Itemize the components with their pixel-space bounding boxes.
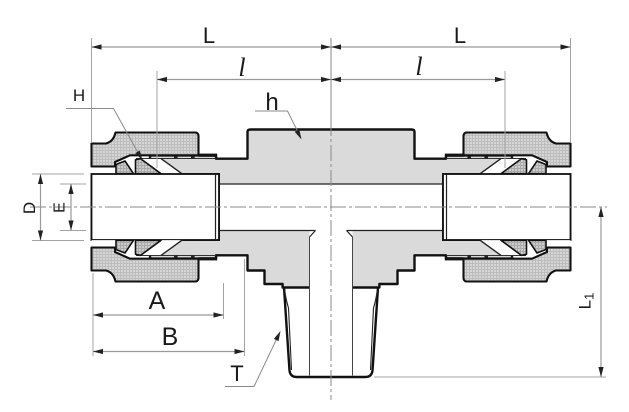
svg-text:L: L (203, 23, 215, 48)
svg-text:A: A (149, 287, 166, 315)
svg-text:L: L (454, 23, 466, 48)
svg-text:D: D (20, 202, 39, 214)
svg-text:T: T (230, 361, 243, 386)
svg-text:H: H (73, 86, 85, 105)
svg-text:l: l (238, 53, 245, 82)
svg-text:h: h (265, 89, 278, 116)
svg-text:B: B (162, 323, 179, 351)
svg-text:E: E (52, 202, 69, 213)
svg-text:l: l (415, 52, 422, 81)
